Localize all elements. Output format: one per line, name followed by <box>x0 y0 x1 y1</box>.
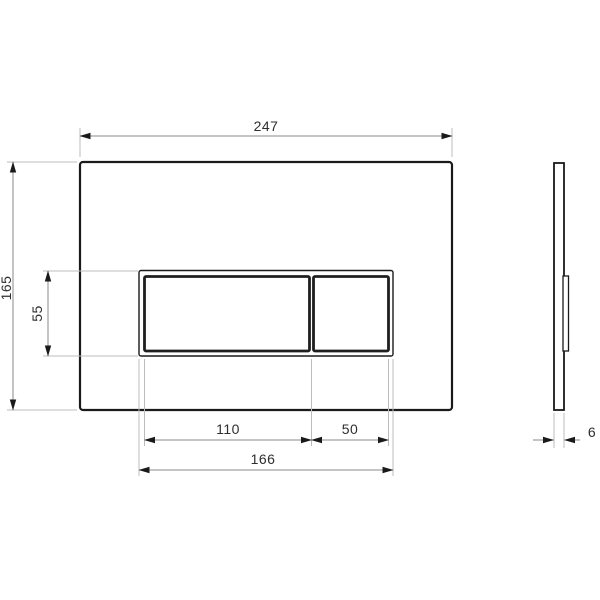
dimension-label-overall-width: 247 <box>254 118 279 134</box>
flush-plate-drawing: 247 165 55 110 50 166 6 <box>0 0 600 600</box>
side-view <box>554 163 569 410</box>
front-view <box>80 162 452 410</box>
dimension-label-overall-height: 165 <box>0 276 14 301</box>
dimension-overall-height: 165 <box>0 162 77 410</box>
small-flush-button <box>314 277 389 352</box>
dimension-label-panel-width: 166 <box>251 451 276 467</box>
dimension-label-small-button-width: 50 <box>342 421 359 437</box>
large-flush-button <box>145 277 310 352</box>
technical-drawing-canvas: 247 165 55 110 50 166 6 <box>0 0 600 600</box>
dimension-overall-width: 247 <box>80 118 452 157</box>
button-side-protrusion <box>563 276 569 351</box>
dimension-label-plate-thickness: 6 <box>588 424 596 440</box>
dimension-label-large-button-width: 110 <box>216 421 240 437</box>
dimension-label-panel-height: 55 <box>29 305 45 322</box>
dimension-plate-thickness: 6 <box>533 413 596 448</box>
